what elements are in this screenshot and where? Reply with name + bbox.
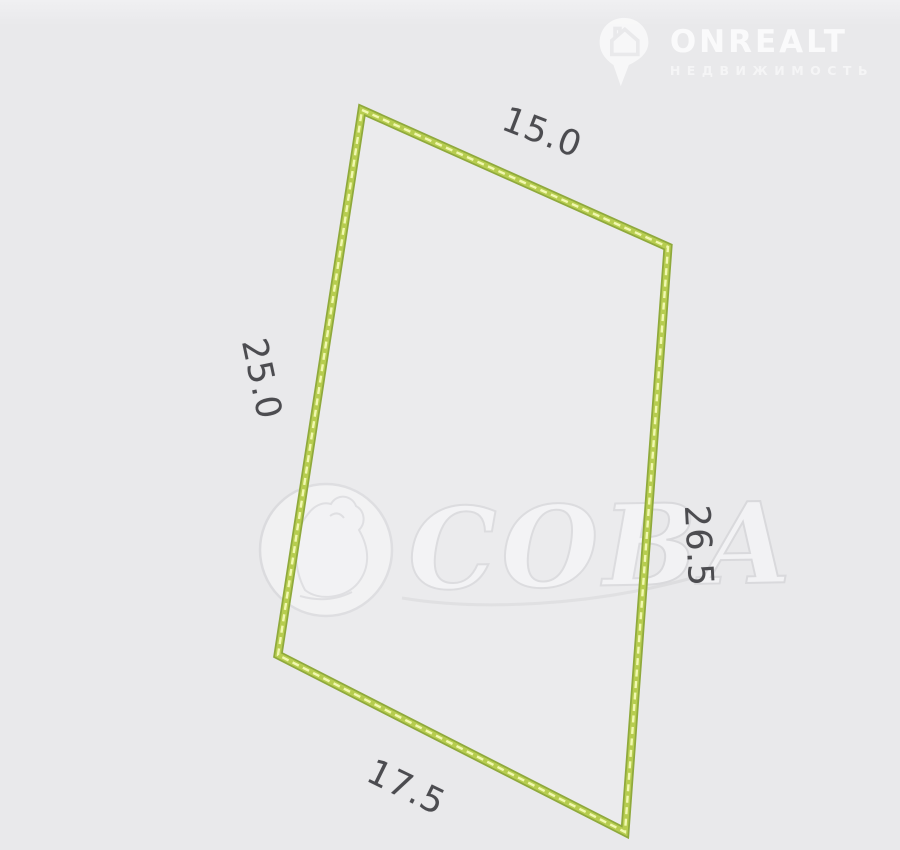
dimension-label-right: 26.5 [676,504,720,588]
plot-boundary [278,110,668,832]
brand-tagline: НЕДВИЖИМОСТЬ [670,65,874,78]
brand-logo-text: ONREALT НЕДВИЖИМОСТЬ [670,27,874,78]
brand-logo: ONREALT НЕДВИЖИМОСТЬ [598,16,874,88]
plot-plan-canvas: СОВА 15.0 25.0 26.5 17.5 ONREALT НЕДВИЖИ… [0,0,900,850]
map-pin-house-icon [598,16,650,88]
plan-drawing: СОВА [0,0,900,850]
brand-name: ONREALT [670,27,848,58]
